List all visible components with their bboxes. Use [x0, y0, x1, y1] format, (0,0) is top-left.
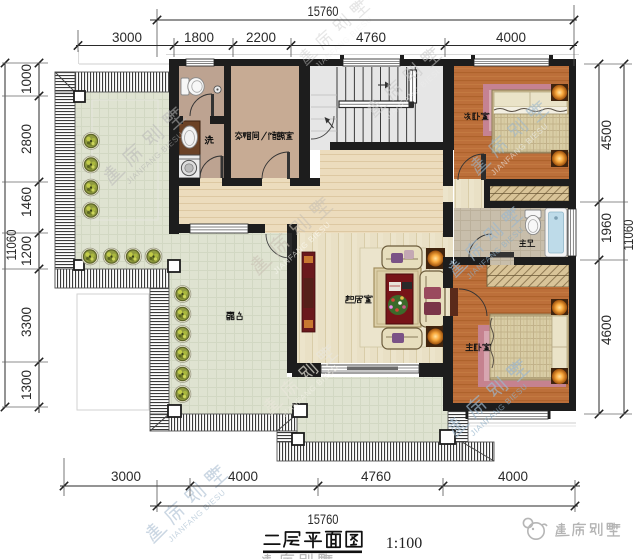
svg-text:1200: 1200 [18, 236, 34, 266]
svg-text:1800: 1800 [184, 29, 214, 45]
svg-text:11060: 11060 [620, 219, 636, 250]
svg-text:1000: 1000 [18, 64, 34, 94]
svg-text:1300: 1300 [18, 370, 34, 400]
svg-text:4000: 4000 [496, 29, 526, 45]
svg-text:1:100: 1:100 [386, 535, 422, 552]
svg-text:1960: 1960 [598, 213, 614, 243]
svg-text:4760: 4760 [361, 468, 391, 484]
svg-text:4600: 4600 [598, 315, 614, 345]
svg-text:3000: 3000 [112, 29, 142, 45]
svg-text:4500: 4500 [598, 120, 614, 150]
svg-text:2800: 2800 [18, 124, 34, 154]
svg-text:4000: 4000 [498, 468, 528, 484]
svg-text:4760: 4760 [356, 29, 386, 45]
svg-text:3300: 3300 [18, 307, 34, 337]
svg-text:15760: 15760 [308, 3, 339, 19]
svg-text:1460: 1460 [18, 187, 34, 217]
svg-text:2200: 2200 [246, 29, 276, 45]
svg-text:4000: 4000 [228, 468, 258, 484]
svg-text:11060: 11060 [3, 229, 19, 260]
svg-text:3000: 3000 [111, 468, 141, 484]
svg-text:15760: 15760 [308, 511, 339, 527]
